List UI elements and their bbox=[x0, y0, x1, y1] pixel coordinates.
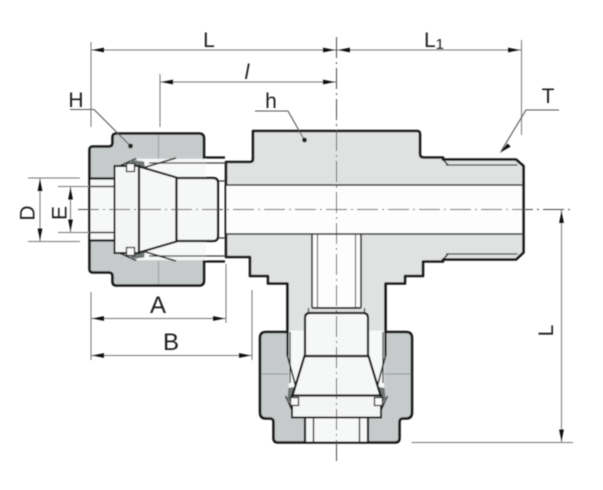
svg-text:L: L bbox=[535, 325, 558, 337]
svg-text:H: H bbox=[68, 89, 83, 112]
svg-text:A: A bbox=[150, 292, 166, 319]
svg-text:L: L bbox=[203, 29, 215, 52]
svg-text:B: B bbox=[163, 329, 179, 356]
svg-text:D: D bbox=[17, 205, 40, 220]
svg-text:T: T bbox=[542, 85, 555, 108]
svg-text:E: E bbox=[49, 206, 72, 220]
svg-text:h: h bbox=[265, 90, 277, 113]
